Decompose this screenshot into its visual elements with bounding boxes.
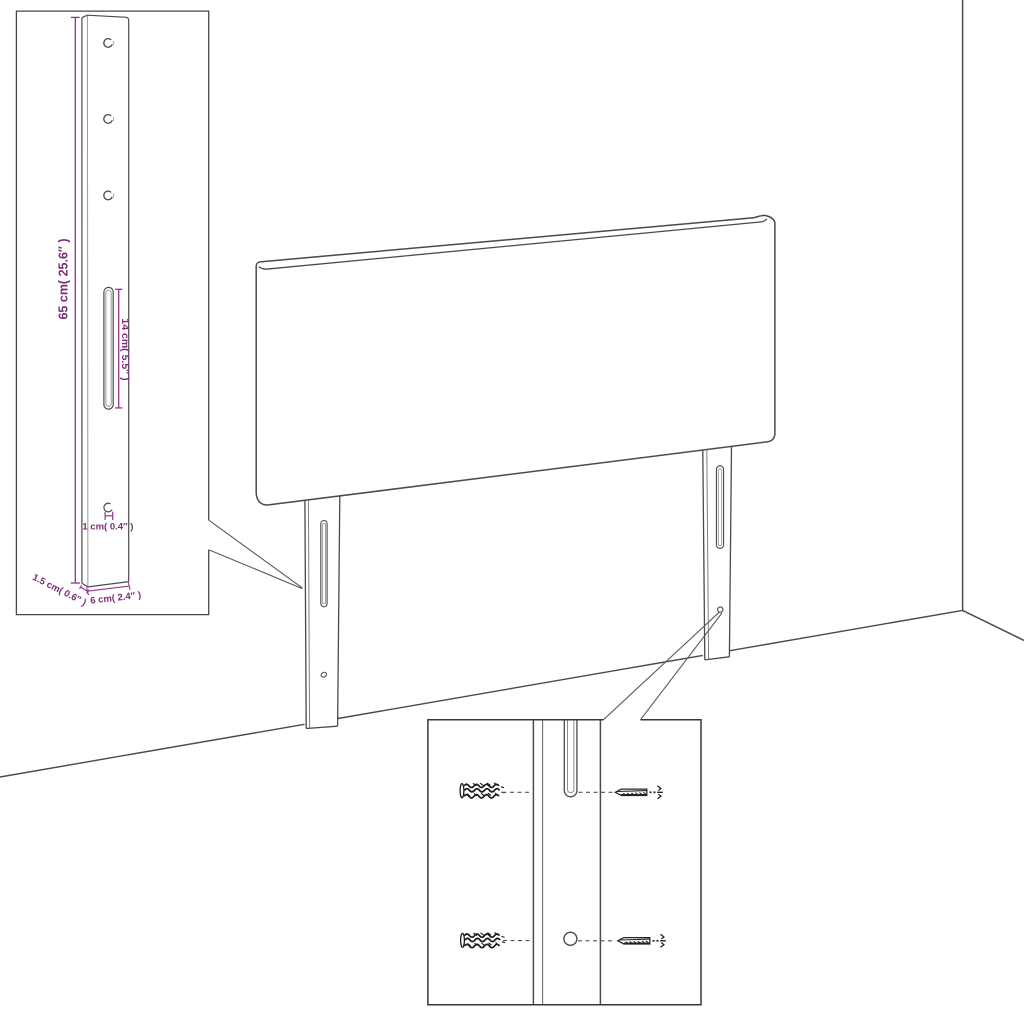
svg-text:65 cm( 25.6″ ): 65 cm( 25.6″ )	[57, 238, 71, 319]
svg-text:14 cm( 5.5″ ): 14 cm( 5.5″ )	[119, 318, 131, 380]
svg-text:1 cm( 0.4″ ): 1 cm( 0.4″ )	[82, 522, 133, 533]
